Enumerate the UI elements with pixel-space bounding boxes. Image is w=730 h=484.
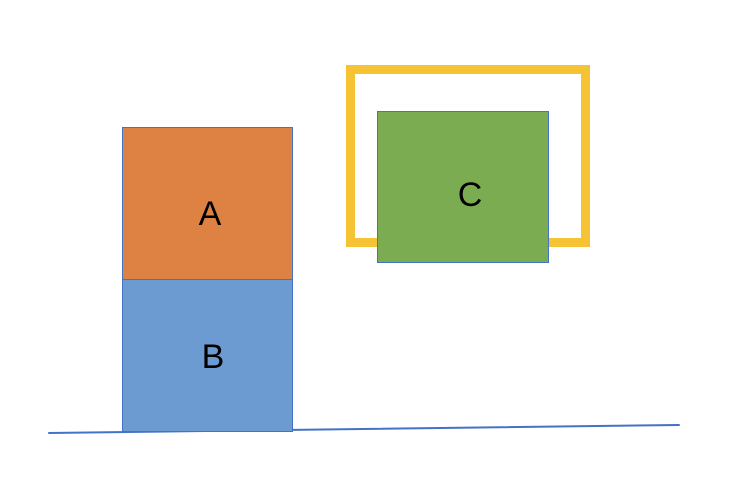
box-a-label: A (199, 195, 222, 233)
diagram-canvas: A B C (0, 0, 730, 484)
box-c-label: C (458, 176, 483, 214)
shapes-svg: A B C (0, 0, 730, 484)
box-b-label: B (202, 338, 225, 376)
